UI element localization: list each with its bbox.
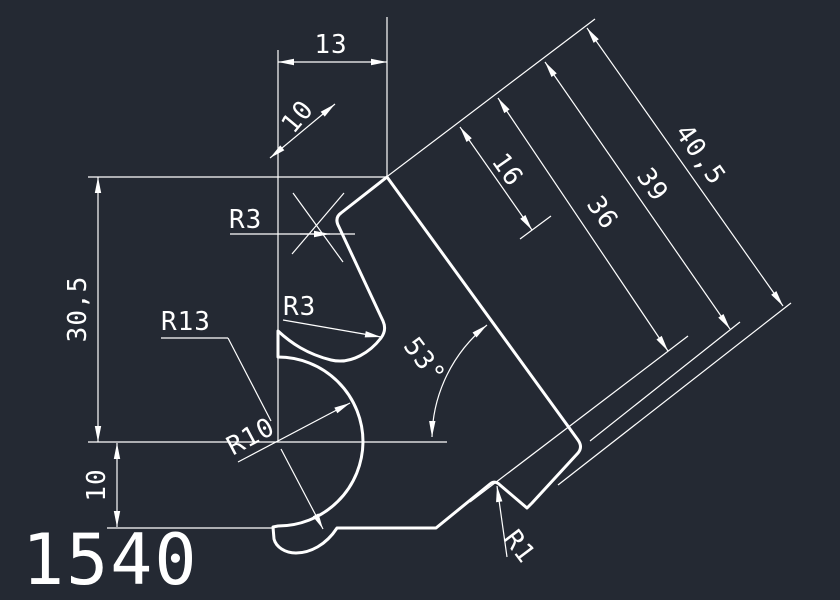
ext-diagonal-top (372, 19, 595, 188)
ext-diag-39 (590, 322, 740, 441)
dimension-lines (98, 28, 783, 527)
ext-diag-36 (470, 336, 688, 502)
radius-r13-label: R13 (161, 307, 211, 337)
dim-13-label: 13 (314, 30, 347, 60)
cad-viewport: 13 10 16 36 39 40,5 30,5 10 53° R13 R3 R… (0, 0, 840, 600)
leader-r13-seg1 (228, 338, 271, 421)
leader-r3-mid (283, 320, 381, 337)
dim-36-label: 36 (580, 191, 624, 235)
dim-39-label: 39 (630, 163, 674, 207)
dim-40-5-label: 40,5 (669, 119, 732, 191)
radius-r3-mid-label: R3 (283, 292, 316, 322)
dim-10-left-label: 10 (82, 468, 112, 501)
ext-diag-40-5 (558, 303, 791, 485)
cad-canvas: 13 10 16 36 39 40,5 30,5 10 53° R13 R3 R… (0, 0, 840, 600)
dimline-36 (498, 98, 668, 351)
dimarc-53 (432, 325, 487, 437)
dimension-labels: 13 10 16 36 39 40,5 30,5 10 53° R13 R3 R… (63, 30, 731, 569)
dimline-39 (545, 62, 730, 329)
leader-r13-seg2 (281, 449, 323, 529)
dim-30-5-label: 30,5 (63, 276, 93, 343)
extension-lines (88, 17, 791, 528)
radius-leaders (161, 234, 507, 557)
dim-16-label: 16 (485, 148, 529, 192)
radius-r3-top-label: R3 (229, 205, 262, 235)
dim-53deg-label: 53° (397, 332, 451, 390)
dim-10-top-label: 10 (276, 95, 320, 140)
part-number: 1540 (22, 519, 199, 600)
